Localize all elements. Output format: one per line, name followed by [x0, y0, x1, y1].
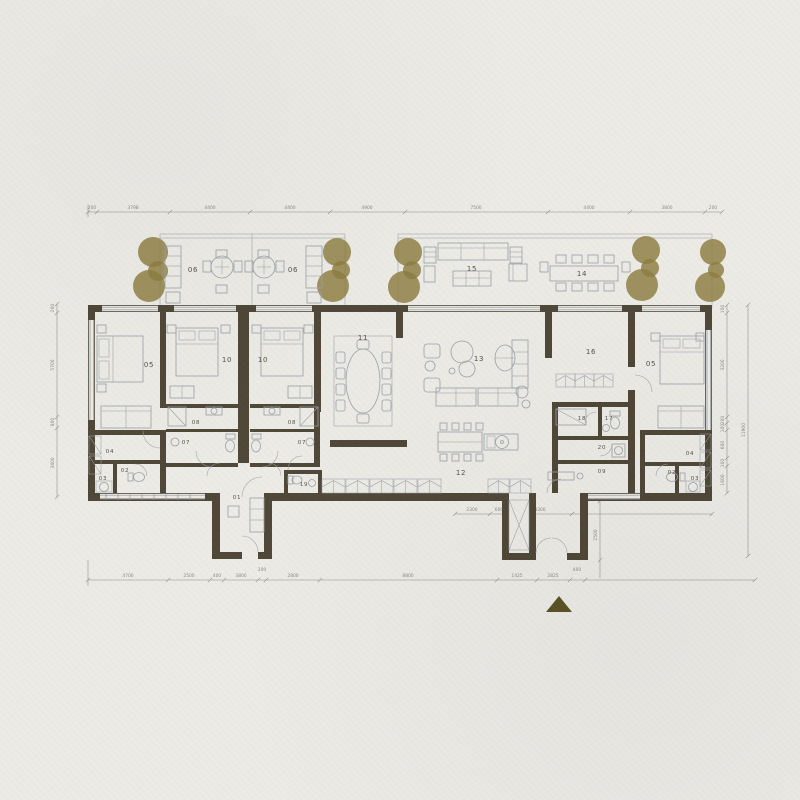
- dimension-label: 200: [88, 205, 97, 211]
- dimension-label: 11900: [741, 423, 747, 437]
- kitchen-12-furniture: [438, 423, 518, 461]
- bedroom-05-right-furniture: [651, 333, 704, 428]
- room-label: 20: [598, 445, 606, 451]
- dimension-label: 4900: [361, 205, 372, 211]
- living-room-13-furniture: [424, 340, 530, 408]
- room-label: 12: [456, 469, 466, 477]
- room-label: 05: [646, 360, 656, 368]
- dimension-label: 1425: [511, 573, 522, 579]
- room-label: 18: [578, 416, 586, 422]
- dimension-label: 3400: [50, 457, 56, 468]
- dressing-16-wardrobes: [556, 374, 613, 387]
- room-label: 10: [258, 356, 268, 364]
- stair-shaft: [509, 500, 529, 550]
- dimension-label: 400: [573, 567, 582, 573]
- room-label: 14: [577, 270, 587, 278]
- room-label: 04: [106, 449, 114, 455]
- bedroom-10a-furniture: [167, 325, 230, 398]
- dimension-label: 200: [720, 416, 726, 425]
- dimension-label: 100: [720, 424, 726, 433]
- north-arrow-icon: [546, 596, 572, 612]
- dimension-label: 200: [258, 567, 267, 573]
- tree-icon: [626, 236, 660, 301]
- dimension-label: 2825: [547, 573, 558, 579]
- dimension-label: 200: [50, 304, 56, 313]
- room-label: 08: [288, 420, 296, 426]
- room-label: 05: [144, 361, 154, 369]
- room-label: 06: [188, 266, 198, 274]
- dimension-label: 2300: [466, 507, 477, 513]
- dimension-label: 3800: [661, 205, 672, 211]
- dimension-label: 200: [709, 205, 718, 211]
- dimension-label: 4400: [204, 205, 215, 211]
- vestibule-01-furniture: [228, 498, 264, 532]
- room-label: 03: [691, 476, 699, 482]
- dimension-label: 600: [720, 441, 726, 450]
- dimension-label: 400: [213, 573, 222, 579]
- terraces: [160, 234, 712, 308]
- room-label: 07: [182, 440, 190, 446]
- terrace-06-left-furniture: [165, 246, 242, 303]
- room-label: 17: [605, 416, 613, 422]
- dimension-label: 4300: [534, 507, 545, 513]
- dimension-label: 100: [720, 459, 726, 468]
- tree-icon: [388, 238, 422, 303]
- room-label: 03: [99, 476, 107, 482]
- room-label: 04: [686, 451, 694, 457]
- room-label: 08: [192, 420, 200, 426]
- dimension-label: 100: [720, 305, 726, 314]
- dimension-label: 4400: [284, 205, 295, 211]
- room-label: 01: [233, 495, 241, 501]
- room-label: 10: [222, 356, 232, 364]
- dimension-label: 4700: [122, 573, 133, 579]
- bedroom-05-left-furniture: [97, 325, 151, 428]
- room-label: 02: [668, 470, 676, 476]
- dimension-label: 5700: [50, 359, 56, 370]
- room-label: 19: [300, 482, 308, 488]
- dimension-label: 2500: [593, 529, 599, 540]
- dimension-label: 1600: [720, 474, 726, 485]
- dimension-label: 3800: [235, 573, 246, 579]
- room-label: 09: [598, 469, 606, 475]
- dimension-label: 8800: [402, 573, 413, 579]
- dining-room-11-furniture: [334, 336, 392, 426]
- room-label: 15: [467, 265, 477, 273]
- dimension-label: 4400: [583, 205, 594, 211]
- bath-18-17-20: [548, 409, 625, 480]
- floor-plan-drawing: 200 3798 4400 4400 4900 7500 4400 3800 2…: [0, 0, 800, 800]
- wardrobe-row: [322, 479, 531, 493]
- dimension-label: 800: [50, 418, 56, 427]
- room-label: 11: [358, 334, 368, 342]
- dimension-label: 3798: [127, 205, 138, 211]
- dimension-label: 7500: [470, 205, 481, 211]
- terrace-06-right-furniture: [245, 246, 322, 303]
- tree-icon: [695, 239, 726, 302]
- dimension-label: 2500: [183, 573, 194, 579]
- room-label: 02: [121, 468, 129, 474]
- walls: [88, 305, 712, 560]
- tree-icon: [133, 237, 168, 302]
- room-label: 16: [586, 348, 596, 356]
- room-label: 06: [288, 266, 298, 274]
- room-label: 07: [298, 440, 306, 446]
- dimension-label: 3200: [720, 359, 726, 370]
- dimension-label: 2800: [287, 573, 298, 579]
- room-label: 13: [474, 355, 484, 363]
